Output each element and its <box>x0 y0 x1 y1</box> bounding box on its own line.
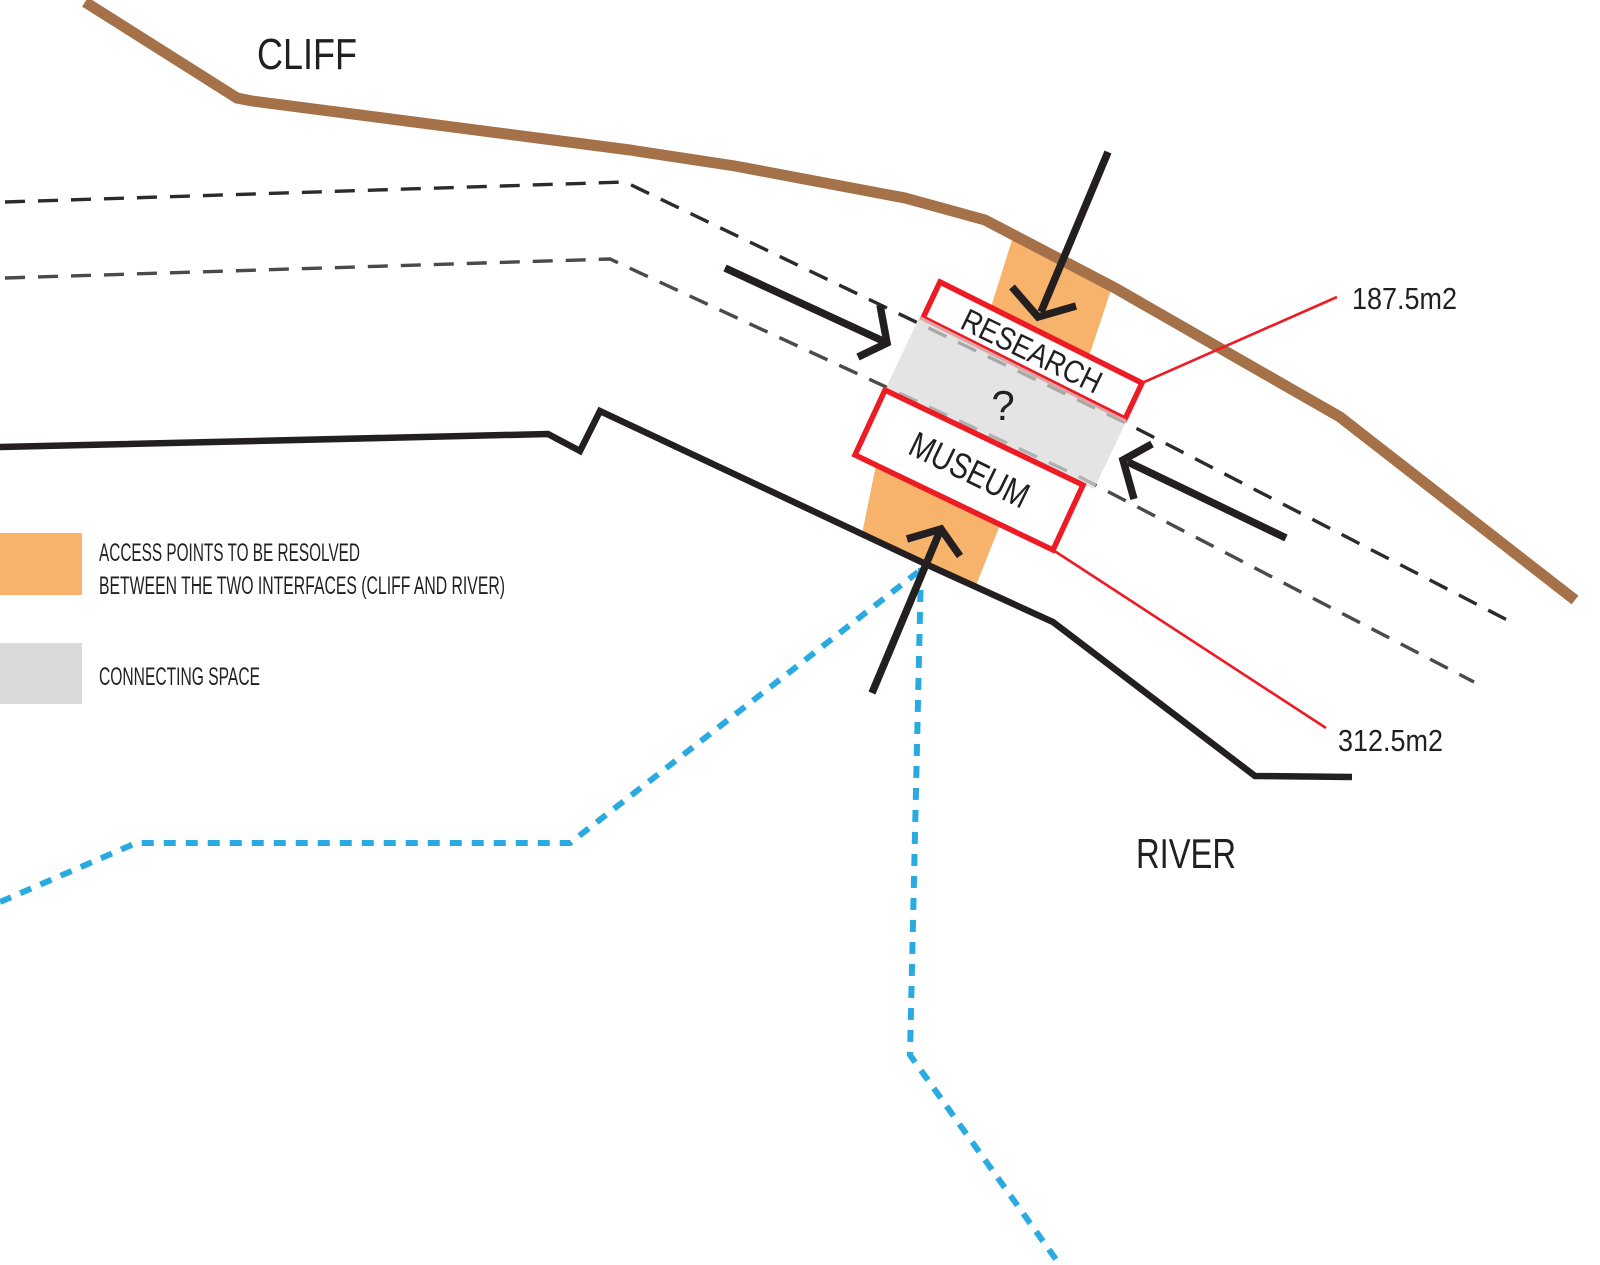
legend-connecting-label: CONNECTING SPACE <box>99 663 260 691</box>
research-area-label: 187.5m2 <box>1352 281 1457 316</box>
water-dashed-line-south <box>910 568 1060 1265</box>
connecting-question-label: ? <box>991 382 1014 429</box>
legend-connecting-swatch <box>0 643 82 704</box>
legend-access-swatch <box>0 533 82 595</box>
river-label: RIVER <box>1136 830 1236 877</box>
museum-area-leader-line <box>1053 550 1326 728</box>
legend-access-line1: ACCESS POINTS TO BE RESOLVED <box>99 539 360 567</box>
cliff-label: CLIFF <box>257 30 357 79</box>
diagram-canvas: CLIFF RIVER RESEARCH MUSEUM ? 187.5m2 31… <box>0 0 1600 1265</box>
contour-dashed-line-lower <box>5 259 1474 682</box>
arrow-road-east-icon <box>1123 444 1286 538</box>
museum-area-label: 312.5m2 <box>1338 723 1443 758</box>
arrow-road-west-icon <box>725 268 887 357</box>
site-concept-diagram: CLIFF RIVER RESEARCH MUSEUM ? 187.5m2 31… <box>0 0 1600 1265</box>
legend-access-line2: BETWEEN THE TWO INTERFACES (CLIFF AND RI… <box>99 572 505 600</box>
water-dashed-line-west <box>0 572 918 902</box>
research-area-leader-line <box>1142 297 1337 383</box>
